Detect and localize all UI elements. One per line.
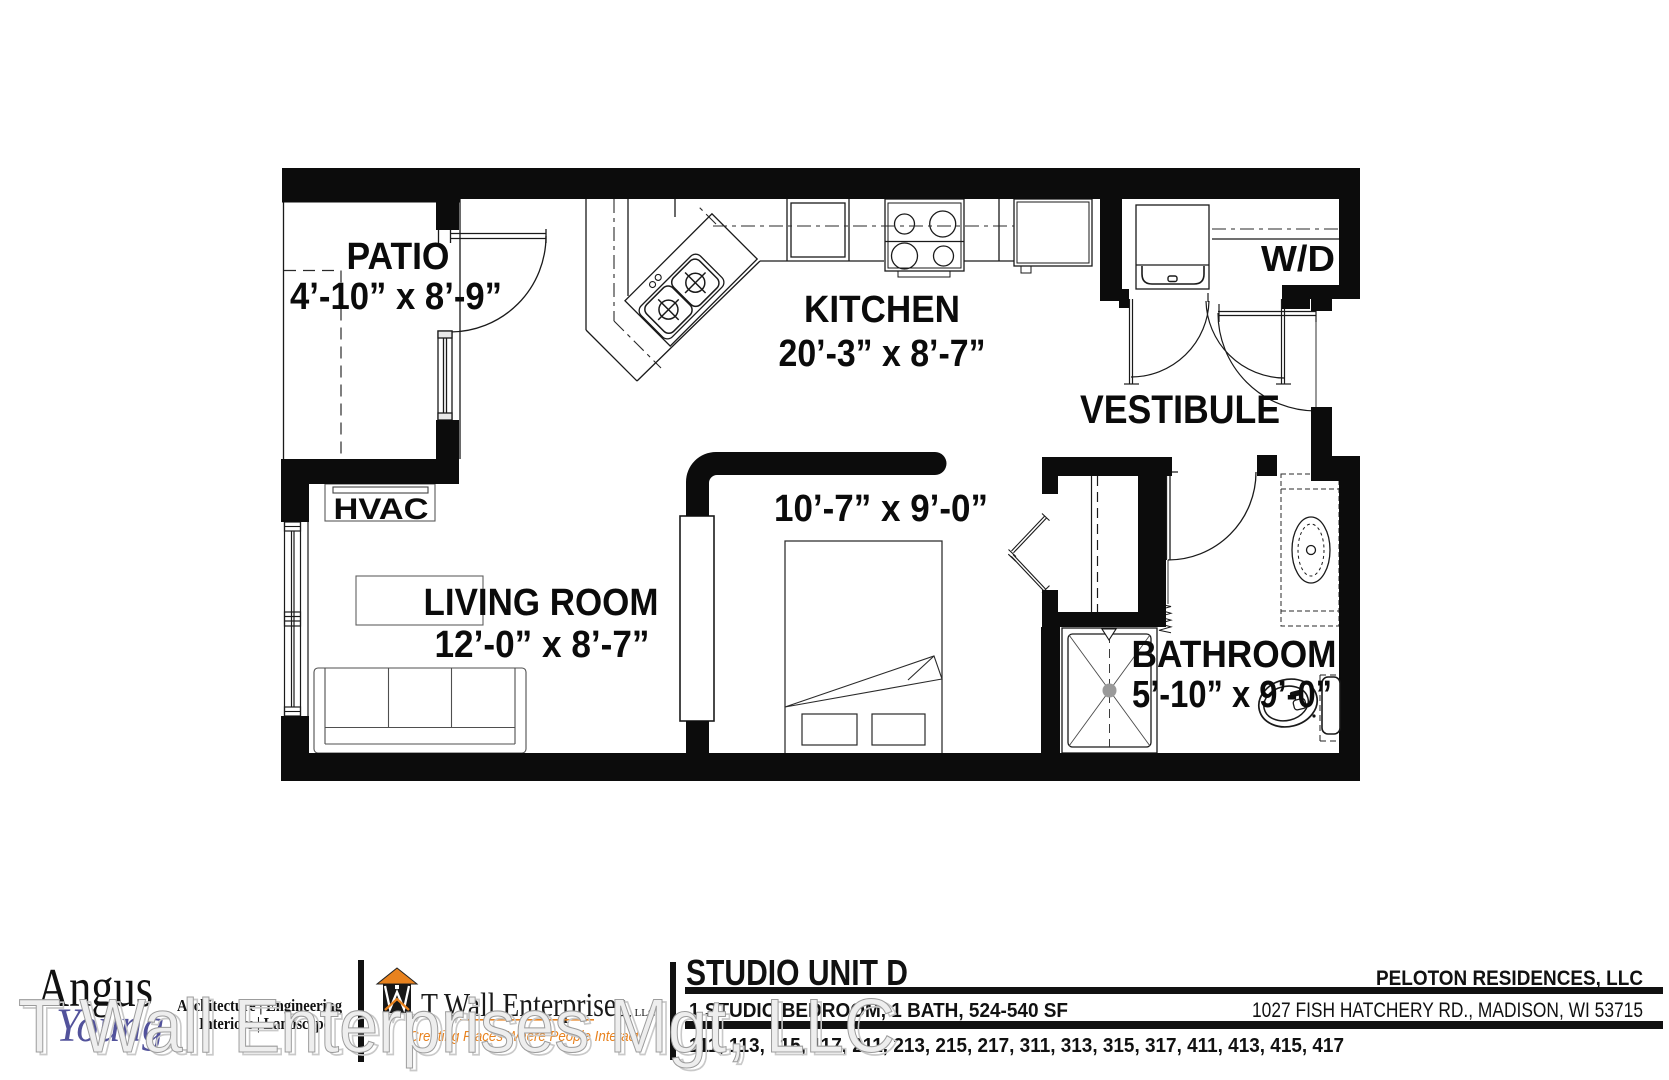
svg-text:12’-0” x 8’-7”: 12’-0” x 8’-7” bbox=[435, 624, 650, 666]
svg-text:20’-3” x 8’-7”: 20’-3” x 8’-7” bbox=[779, 333, 986, 375]
svg-text:W/D: W/D bbox=[1261, 238, 1335, 279]
svg-text:VESTIBULE: VESTIBULE bbox=[1080, 388, 1280, 432]
svg-text:5’-10” x 9’-0”: 5’-10” x 9’-0” bbox=[1132, 674, 1332, 716]
svg-text:PELOTON RESIDENCES, LLC: PELOTON RESIDENCES, LLC bbox=[1376, 967, 1643, 990]
svg-text:HVAC: HVAC bbox=[334, 493, 429, 526]
svg-text:KITCHEN: KITCHEN bbox=[804, 289, 960, 331]
svg-text:1027 FISH HATCHERY RD., MADISO: 1027 FISH HATCHERY RD., MADISON, WI 5371… bbox=[1252, 999, 1643, 1022]
svg-text:BATHROOM: BATHROOM bbox=[1132, 634, 1337, 676]
svg-text:T Wall Enterprises Mgt, LLC: T Wall Enterprises Mgt, LLC bbox=[18, 984, 895, 1069]
svg-text:10’-7” x 9’-0”: 10’-7” x 9’-0” bbox=[774, 488, 988, 530]
svg-text:LIVING ROOM: LIVING ROOM bbox=[424, 582, 659, 624]
svg-text:4’-10” x 8’-9”: 4’-10” x 8’-9” bbox=[290, 276, 502, 318]
svg-text:PATIO: PATIO bbox=[347, 236, 450, 278]
